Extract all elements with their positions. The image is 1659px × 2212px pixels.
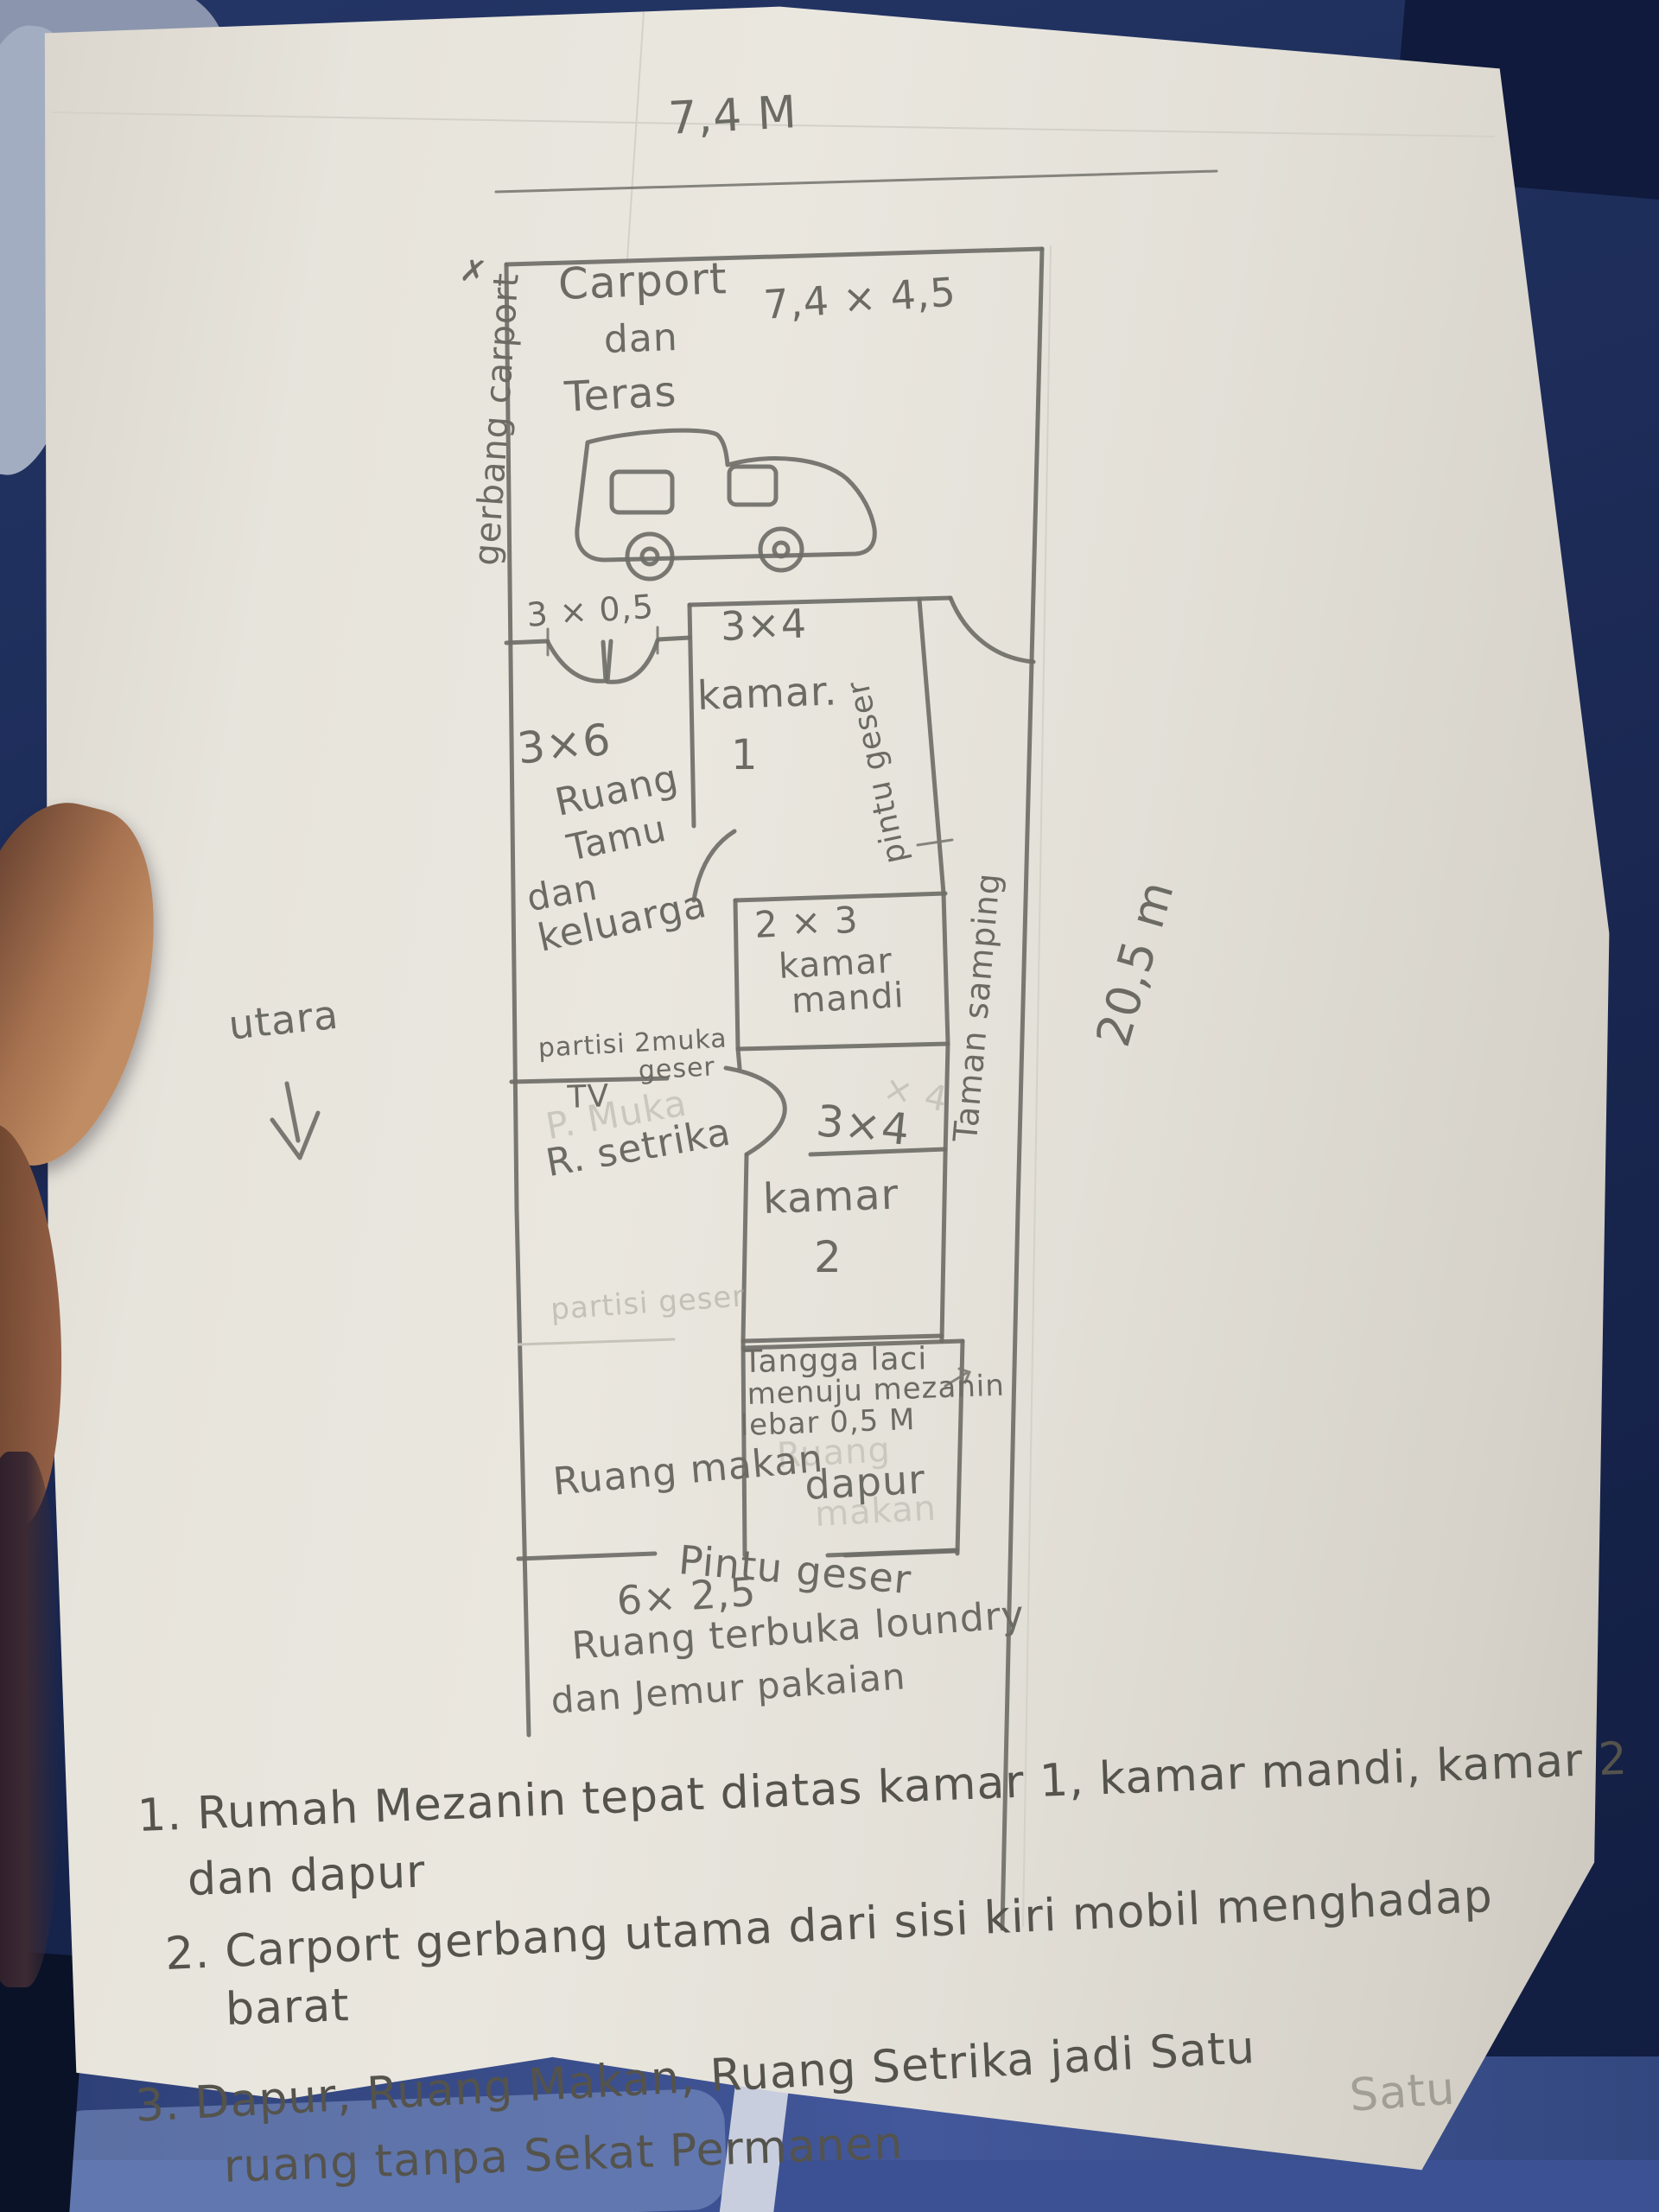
wall-entry-left-stub [506, 641, 548, 643]
car-wheel-rear-hub [642, 549, 658, 564]
photo-scene: 7,4 M gerbang carport ✗ Carport dan Tera… [0, 0, 1659, 2212]
kamar1-size: 3×4 [720, 601, 808, 650]
note-1-line-2: dan dapur [187, 1846, 427, 1906]
car-window-front [729, 467, 776, 505]
wall-kamarmandi-left [735, 900, 740, 1068]
wall-kamar2-bottom [743, 1336, 942, 1341]
kamar2-name: kamar [762, 1171, 899, 1224]
kamarmandi-size: 2 × 3 [753, 899, 860, 946]
kamar1-number: 1 [731, 731, 759, 779]
note-2-line-2: barat [225, 1980, 351, 2036]
paper-crease-vertical [627, 12, 644, 259]
dapur-label: dapur [804, 1456, 926, 1509]
wall-center-upper [690, 605, 694, 826]
wall-kamarmandi-bottom [738, 1044, 948, 1049]
wall-entry-right-stub [658, 638, 690, 639]
car-body [577, 430, 874, 560]
carport-label-1: Carport [557, 253, 728, 309]
north-arrow [272, 1084, 318, 1158]
carport-label-2: dan [603, 315, 679, 362]
carport-label-3: Teras [563, 367, 678, 422]
ruangtamu-size: 3×6 [515, 715, 613, 774]
kamar1-name: kamar. [696, 667, 838, 719]
dim-top-underline [496, 171, 1217, 192]
car-wheel-front [760, 529, 802, 570]
window-tick-kamar1 [918, 840, 952, 845]
hand-shadow-edge [0, 1452, 60, 1987]
kamar2-number: 2 [814, 1232, 842, 1282]
wall-kamar1-right [919, 600, 944, 893]
ghost-satu: Satu [1348, 2063, 1457, 2121]
car-window-rear [612, 472, 672, 512]
dim-top-label: 7,4 M [667, 86, 798, 145]
wall-pintugeser-left [518, 1554, 655, 1559]
car-wheel-front-hub [774, 543, 788, 556]
wall-partisi-erased [518, 1339, 674, 1344]
kamar2-size: 3×4 [814, 1096, 912, 1155]
gate-mark: ✗ [458, 252, 490, 291]
door-swing-kamar2 [726, 1068, 785, 1154]
door-swing-carport-taman [950, 598, 1033, 662]
partisi-label-2: geser [638, 1052, 716, 1086]
kamarmandi-label-2: mandi [791, 976, 906, 1021]
entry-door-leaf-right [607, 640, 658, 682]
entry-door-leaf-left [548, 642, 606, 681]
